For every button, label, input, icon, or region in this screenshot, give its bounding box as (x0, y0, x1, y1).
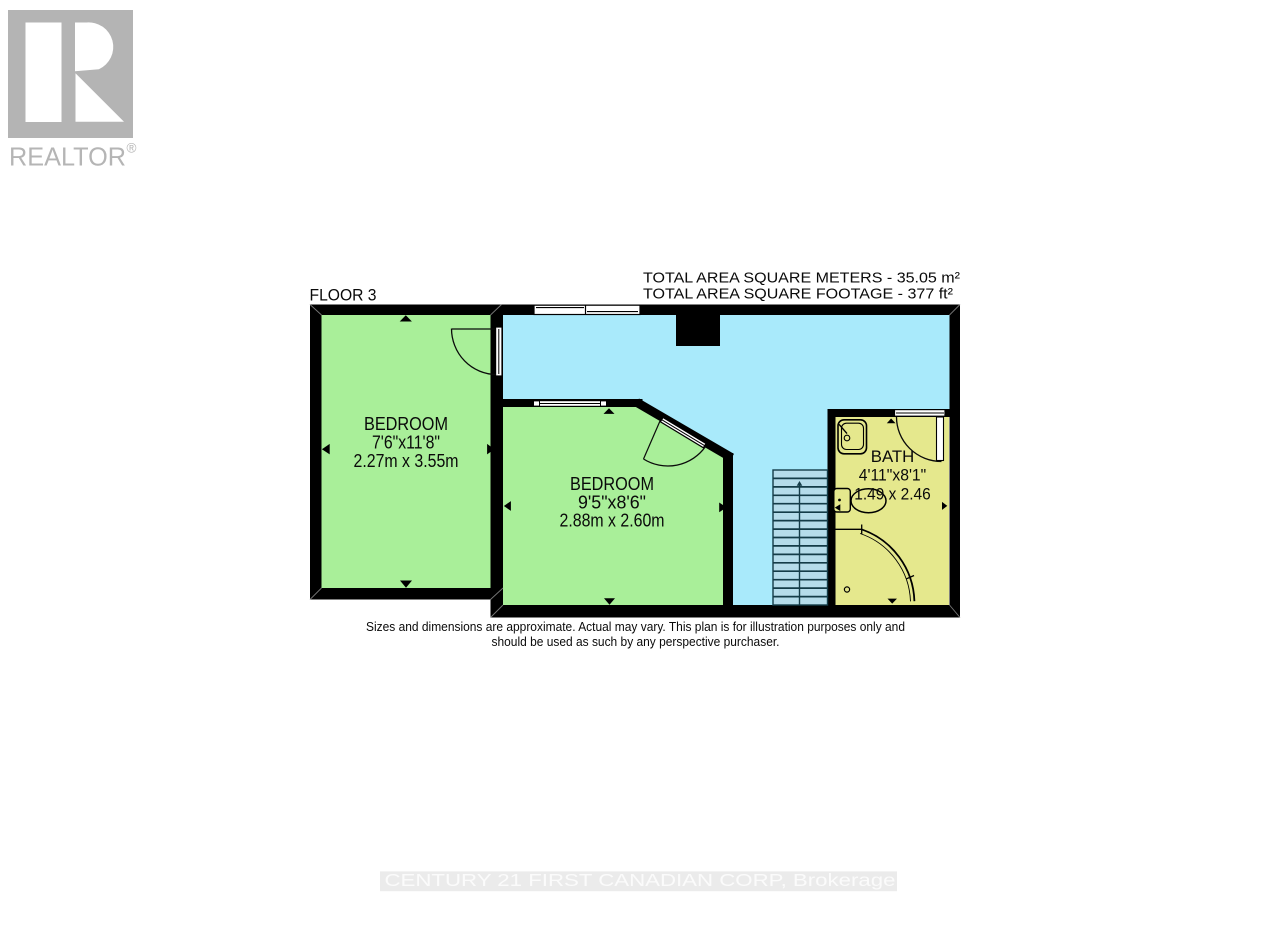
svg-text:2.88m x 2.60m: 2.88m x 2.60m (560, 509, 665, 530)
svg-text:TOTAL AREA SQUARE METERS - 35.: TOTAL AREA SQUARE METERS - 35.05 m² (643, 269, 960, 286)
svg-text:CENTURY 21 FIRST CANADIAN CORP: CENTURY 21 FIRST CANADIAN CORP, Brokerag… (385, 870, 896, 890)
svg-text:FLOOR 3: FLOOR 3 (310, 287, 377, 305)
svg-text:4'11"x8'1": 4'11"x8'1" (859, 465, 927, 484)
svg-text:should be used as such by any: should be used as such by any perspectiv… (492, 634, 780, 649)
svg-text:BATH: BATH (871, 447, 915, 466)
svg-text:REALTOR: REALTOR (9, 142, 126, 172)
svg-text:TOTAL AREA SQUARE FOOTAGE - 37: TOTAL AREA SQUARE FOOTAGE - 377 ft² (643, 285, 953, 302)
svg-text:1.49 x 2.46: 1.49 x 2.46 (854, 484, 931, 503)
svg-text:Sizes and dimensions are appro: Sizes and dimensions are approximate. Ac… (366, 619, 905, 634)
svg-text:2.27m x 3.55m: 2.27m x 3.55m (354, 450, 459, 471)
svg-text:®: ® (127, 141, 137, 156)
